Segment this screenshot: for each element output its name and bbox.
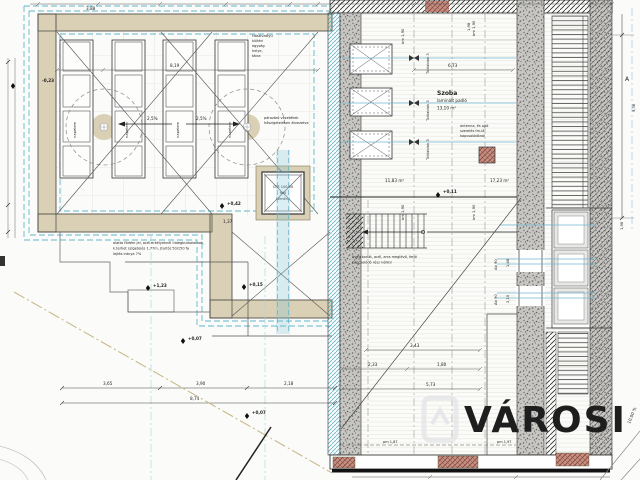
window-mark-label: Ab 90 [494,294,498,305]
terrace-note-3: lejtés iránya 7% [113,252,142,256]
dim-label: 2,18 [284,381,294,386]
note-line: antenna, és ajtó [460,124,488,128]
middle-wall [517,0,544,455]
shaft [479,147,495,163]
dim-label: 8,19 [170,63,180,68]
elevation-label: +0,11 [443,189,457,194]
window-mark-label: Ab 90 [494,259,498,270]
note-line: Hőszivattyú [252,34,273,38]
dim-label: 1,98 [467,22,471,31]
elevation-label: +0,07 [188,336,202,341]
room-floor: laminált padló [437,98,467,103]
bottom-wall [330,453,612,473]
zone-area-left: 11,83 m² [385,178,404,183]
terrace-note-2: k.terhet szigetelés 1,77m, (tartó) 50/15… [113,247,189,251]
sliding-window-label: Tolóablak 3 [426,100,430,122]
solar-panel-label: napelem [176,122,180,138]
clear-height-label: bm 1,90 [472,204,476,220]
duct-strip [276,150,290,334]
slope-label-right: 2,5% [196,116,207,121]
note-line: párazáró vezetékek [264,116,299,120]
dim-label: 2,10 [506,294,510,303]
note-line: helye, [252,49,263,53]
fence-line [236,427,271,480]
note-line: kapcsolódónál [460,134,485,138]
note-line: egység [252,44,265,48]
dim-label: 3,65 [103,381,113,386]
clear-height-label: bm 1,90 [472,20,476,36]
room-name: Szoba [437,90,457,97]
window-opening-1 [516,250,545,272]
pergola-rungs-lower [558,332,588,394]
elevation-label: +0,07 [252,410,266,415]
architectural-drawing: napelem napelem napelem napelem CPE 100/… [0,0,640,480]
stair-note-2: kapcsolódó rész nélkül [352,261,392,265]
floorplan-canvas: napelem napelem napelem napelem CPE 100/… [0,0,640,480]
contour-arc [0,445,46,480]
dim-label: 3,43 [410,343,420,348]
slope-label-left: 2,5% [147,116,158,121]
dim-label: 1,48 [506,258,510,267]
sliding-window-label: Tolóablak 3 [426,139,430,161]
elevation-label: +0,15 [249,282,263,287]
note-line: kültéri [252,39,263,43]
top-wall [330,0,612,13]
contour-arc [0,458,28,480]
stair-note-1: üveg korlát, acél, arra meglévő, fenti [352,255,417,259]
note-line: tálca [252,54,261,58]
dim-label: 5,73 [426,382,436,387]
solar-panel-label: napelem [73,122,77,138]
zone-area-right: 17,23 m² [490,178,509,183]
dim-label: 9,36 [632,103,636,112]
room-area: 13,10 m² [437,106,456,111]
top-dim-left [30,2,330,6]
window-opening-2 [516,286,545,306]
dim-label: 3,90 [196,381,206,386]
watermark: VÁROSI [424,398,627,441]
window-bay [552,210,590,328]
note-line: szerelés fm-lé [460,129,484,133]
watermark-text: VÁROSI [464,399,627,441]
right-dims: A 9,36 1,98 [612,8,636,232]
section-marker: A [625,76,630,83]
dim-label: 1,98 [620,221,624,230]
elevation-label: +1,23 [153,283,167,288]
dim-label: 6,73 [448,63,458,68]
parapet-label: pm 1,87 [383,440,398,444]
clear-height-label: bm 1,90 [401,204,405,220]
pergola-rungs-upper [552,16,588,208]
right-wall-hatch [590,0,612,455]
dim-label: 1,80 [437,362,447,367]
clear-height-label: bm 1,90 [401,28,405,44]
dim-label: 2,33 [368,362,378,367]
elevation-label: +0,42 [227,201,241,206]
dim-label: 1,37 [223,219,233,224]
dim-label: 3,88 [86,6,96,11]
note-line: hőszigetelésen átvezetve [264,121,309,125]
roof-terrace: napelem napelem napelem napelem CPE 100/… [24,6,332,334]
brick-patch-top [425,1,449,12]
terrace-note-1: alatta födém jel, acél erkélyeknél hideg… [113,241,204,245]
ramp-slope-label: 10.00 % [626,406,637,424]
sliding-window-label: Tolóablak 3 [426,53,430,75]
elevation-label: -0,23 [42,78,54,83]
